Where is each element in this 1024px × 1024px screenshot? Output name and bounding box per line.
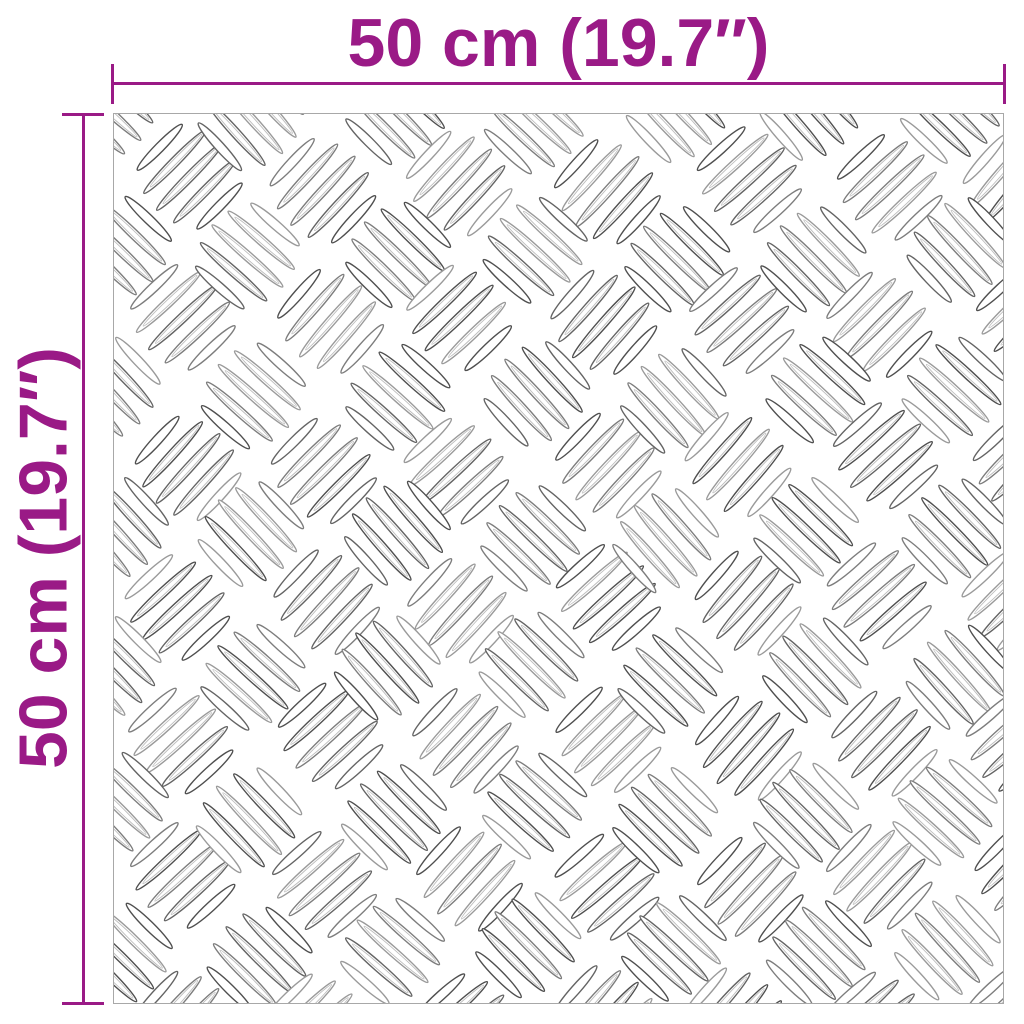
height-dimension-label: 50 cm (19.7″) [3,113,85,1004]
width-dimension-label: 50 cm (19.7″) [113,4,1004,82]
product-dimension-diagram: 50 cm (19.7″) 50 cm (19.7″) [0,0,1024,1024]
checker-plate-pattern [114,114,1003,1003]
width-dimension-line [113,82,1004,85]
checker-plate-sheet [113,113,1004,1004]
